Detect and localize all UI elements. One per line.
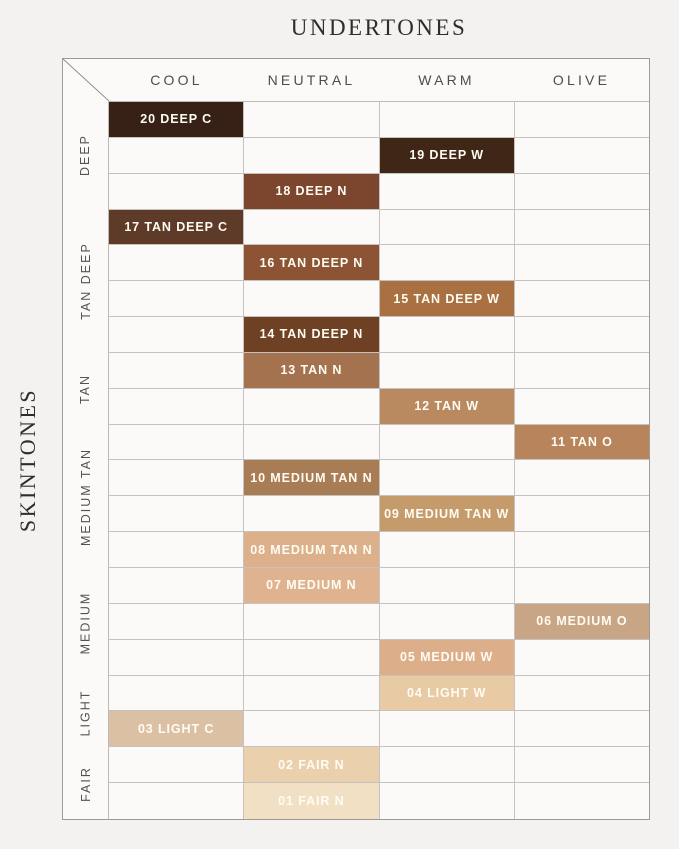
- table-row: 14 TAN DEEP N: [109, 317, 649, 353]
- empty-cell: [515, 389, 649, 425]
- empty-cell: [244, 102, 379, 138]
- skintone-group-tan: TAN: [63, 353, 108, 425]
- empty-cell: [380, 425, 515, 461]
- column-header-warm: WARM: [379, 59, 514, 101]
- shade-08-medium-tan-n[interactable]: 08 MEDIUM TAN N: [244, 532, 379, 568]
- skintone-group-medium-label: MEDIUM: [79, 592, 93, 655]
- empty-cell: [380, 102, 515, 138]
- column-header-cool: COOL: [109, 59, 244, 101]
- empty-cell: [380, 245, 515, 281]
- shade-06-medium-o[interactable]: 06 MEDIUM O: [515, 604, 649, 640]
- skintone-group-medium: MEDIUM: [63, 569, 108, 677]
- empty-cell: [380, 460, 515, 496]
- skintone-group-fair-label: FAIR: [78, 766, 92, 802]
- corner-diagonal-line: [63, 59, 109, 101]
- shade-18-deep-n[interactable]: 18 DEEP N: [244, 174, 379, 210]
- table-row: 13 TAN N: [109, 353, 649, 389]
- empty-cell: [380, 317, 515, 353]
- table-row: 08 MEDIUM TAN N: [109, 532, 649, 568]
- table-row: 01 FAIR N: [109, 783, 649, 819]
- empty-cell: [515, 174, 649, 210]
- empty-cell: [515, 317, 649, 353]
- empty-cell: [515, 496, 649, 532]
- shade-05-medium-w[interactable]: 05 MEDIUM W: [380, 640, 515, 676]
- empty-cell: [380, 353, 515, 389]
- empty-cell: [109, 174, 244, 210]
- shade-16-tan-deep-n[interactable]: 16 TAN DEEP N: [244, 245, 379, 281]
- empty-cell: [380, 568, 515, 604]
- table-row: 02 FAIR N: [109, 747, 649, 783]
- empty-cell: [109, 389, 244, 425]
- shade-04-light-w[interactable]: 04 LIGHT W: [380, 676, 515, 712]
- table-row: 07 MEDIUM N: [109, 568, 649, 604]
- shade-15-tan-deep-w[interactable]: 15 TAN DEEP W: [380, 281, 515, 317]
- empty-cell: [109, 640, 244, 676]
- empty-cell: [380, 210, 515, 246]
- empty-cell: [109, 245, 244, 281]
- empty-cell: [244, 281, 379, 317]
- empty-cell: [244, 640, 379, 676]
- empty-cell: [244, 138, 379, 174]
- empty-cell: [515, 210, 649, 246]
- empty-cell: [380, 174, 515, 210]
- empty-cell: [515, 747, 649, 783]
- empty-cell: [515, 640, 649, 676]
- empty-cell: [109, 783, 244, 819]
- skintone-group-tan-label: TAN: [78, 374, 92, 404]
- skintone-group-deep-label: DEEP: [78, 134, 92, 176]
- shade-chart: UNDERTONES SKINTONES COOL NEUTRAL WARM O…: [0, 0, 679, 849]
- shade-03-light-c[interactable]: 03 LIGHT C: [109, 711, 244, 747]
- empty-cell: [515, 102, 649, 138]
- empty-cell: [515, 532, 649, 568]
- shade-07-medium-n[interactable]: 07 MEDIUM N: [244, 568, 379, 604]
- shade-14-tan-deep-n[interactable]: 14 TAN DEEP N: [244, 317, 379, 353]
- table-row: 17 TAN DEEP C: [109, 210, 649, 246]
- shade-12-tan-w[interactable]: 12 TAN W: [380, 389, 515, 425]
- empty-cell: [515, 460, 649, 496]
- skintone-group-light: LIGHT: [63, 677, 108, 749]
- undertone-header-row: COOL NEUTRAL WARM OLIVE: [109, 59, 649, 101]
- empty-cell: [109, 353, 244, 389]
- shade-13-tan-n[interactable]: 13 TAN N: [244, 353, 379, 389]
- table-row: 04 LIGHT W: [109, 676, 649, 712]
- shade-matrix-table: COOL NEUTRAL WARM OLIVE DEEP TAN DEEP TA…: [62, 58, 650, 820]
- table-row: 20 DEEP C: [109, 102, 649, 138]
- empty-cell: [109, 281, 244, 317]
- shade-11-tan-o[interactable]: 11 TAN O: [515, 425, 649, 461]
- table-row: 10 MEDIUM TAN N: [109, 460, 649, 496]
- empty-cell: [109, 604, 244, 640]
- empty-cell: [515, 783, 649, 819]
- empty-cell: [244, 496, 379, 532]
- table-row: 09 MEDIUM TAN W: [109, 496, 649, 532]
- shade-17-tan-deep-c[interactable]: 17 TAN DEEP C: [109, 210, 244, 246]
- empty-cell: [515, 353, 649, 389]
- empty-cell: [109, 568, 244, 604]
- corner-diagonal: [63, 59, 109, 101]
- table-row: 05 MEDIUM W: [109, 640, 649, 676]
- empty-cell: [244, 210, 379, 246]
- empty-cell: [109, 460, 244, 496]
- empty-cell: [515, 245, 649, 281]
- table-row: 06 MEDIUM O: [109, 604, 649, 640]
- empty-cell: [380, 532, 515, 568]
- empty-cell: [244, 425, 379, 461]
- empty-cell: [109, 496, 244, 532]
- skintone-group-column: DEEP TAN DEEP TAN MEDIUM TAN MEDIUM LIGH…: [63, 101, 109, 819]
- table-row: 12 TAN W: [109, 389, 649, 425]
- column-header-neutral: NEUTRAL: [244, 59, 379, 101]
- table-row: 11 TAN O: [109, 425, 649, 461]
- shade-09-medium-tan-w[interactable]: 09 MEDIUM TAN W: [380, 496, 515, 532]
- table-row: 19 DEEP W: [109, 138, 649, 174]
- skintone-group-tan-deep: TAN DEEP: [63, 209, 108, 353]
- skintone-group-deep: DEEP: [63, 101, 108, 209]
- shade-01-fair-n[interactable]: 01 FAIR N: [244, 783, 379, 819]
- empty-cell: [109, 317, 244, 353]
- shade-10-medium-tan-n[interactable]: 10 MEDIUM TAN N: [244, 460, 379, 496]
- empty-cell: [515, 568, 649, 604]
- skintones-title-text: SKINTONES: [15, 388, 41, 532]
- table-row: 16 TAN DEEP N: [109, 245, 649, 281]
- empty-cell: [380, 711, 515, 747]
- skintone-group-medium-tan: MEDIUM TAN: [63, 425, 108, 569]
- empty-cell: [380, 604, 515, 640]
- empty-cell: [380, 783, 515, 819]
- empty-cell: [109, 676, 244, 712]
- skintone-group-medium-tan-label: MEDIUM TAN: [79, 448, 93, 546]
- undertones-title: UNDERTONES: [108, 15, 650, 41]
- empty-cell: [109, 425, 244, 461]
- table-row: 03 LIGHT C: [109, 711, 649, 747]
- empty-cell: [515, 281, 649, 317]
- empty-cell: [109, 747, 244, 783]
- skintone-group-tan-deep-label: TAN DEEP: [79, 242, 93, 320]
- empty-cell: [109, 138, 244, 174]
- skintones-title: SKINTONES: [6, 100, 50, 820]
- empty-cell: [380, 747, 515, 783]
- shade-19-deep-w[interactable]: 19 DEEP W: [380, 138, 515, 174]
- shade-02-fair-n[interactable]: 02 FAIR N: [244, 747, 379, 783]
- empty-cell: [244, 389, 379, 425]
- column-header-olive: OLIVE: [514, 59, 649, 101]
- empty-cell: [515, 676, 649, 712]
- empty-cell: [244, 676, 379, 712]
- table-row: 18 DEEP N: [109, 174, 649, 210]
- table-row: 15 TAN DEEP W: [109, 281, 649, 317]
- skintone-group-fair: FAIR: [63, 749, 108, 819]
- empty-cell: [515, 138, 649, 174]
- shade-grid: 20 DEEP C 19 DEEP W 18 DEEP N 17 TAN DEE…: [109, 101, 649, 819]
- empty-cell: [244, 711, 379, 747]
- empty-cell: [109, 532, 244, 568]
- skintone-group-light-label: LIGHT: [79, 690, 93, 737]
- empty-cell: [244, 604, 379, 640]
- shade-20-deep-c[interactable]: 20 DEEP C: [109, 102, 244, 138]
- empty-cell: [515, 711, 649, 747]
